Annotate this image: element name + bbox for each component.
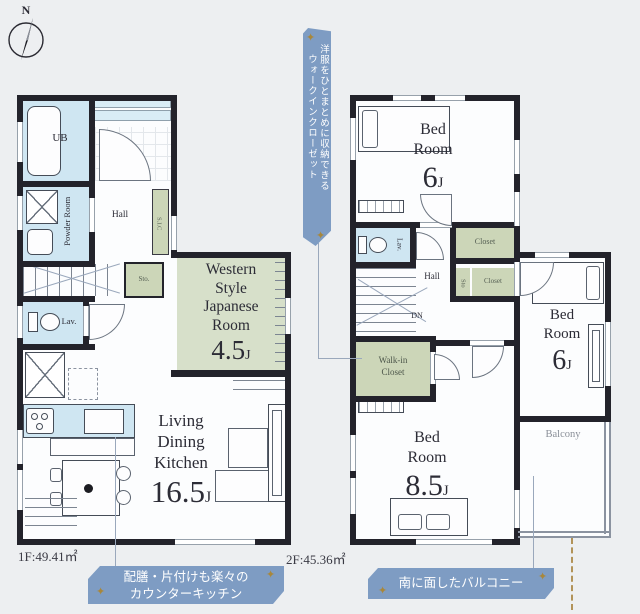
annotation-text: カウンターキッチン <box>88 586 284 603</box>
label-line: Room <box>528 327 596 342</box>
annotation-banner-wic: 洋服をひとまとめに収納できる ウォークインクローゼット <box>303 28 331 246</box>
label-line: Bed <box>392 430 462 446</box>
room-label-sto: Sto. <box>126 276 162 283</box>
size-unit: J <box>205 489 211 506</box>
wall <box>350 396 436 402</box>
washing-machine <box>26 190 58 224</box>
wall <box>514 95 520 258</box>
label-line: Room <box>180 318 282 334</box>
compass-icon <box>8 4 64 68</box>
label-line: Japanese <box>180 299 282 315</box>
burner-icon <box>36 423 43 430</box>
window <box>17 306 23 338</box>
chair <box>116 466 131 481</box>
window <box>17 430 23 464</box>
window <box>175 539 255 545</box>
label-line: Bed <box>528 308 596 323</box>
stove <box>26 408 54 434</box>
wall <box>17 261 95 267</box>
wall <box>450 296 520 302</box>
window <box>285 298 291 334</box>
room-size: 6J <box>398 163 468 193</box>
washbasin <box>27 229 53 255</box>
kitchen-sink <box>84 409 124 434</box>
window <box>393 95 421 101</box>
star-icon: ✦ <box>538 571 547 582</box>
wall <box>450 228 456 302</box>
chair <box>50 468 62 482</box>
star-icon: ✦ <box>378 585 387 596</box>
label-line: Western <box>180 262 282 278</box>
label-line: Room <box>398 142 468 158</box>
size-number: 6 <box>423 161 438 194</box>
pillow <box>362 110 378 148</box>
size-number: 16.5 <box>151 474 205 509</box>
balcony-rail <box>609 422 611 538</box>
wall <box>514 416 611 422</box>
size-number: 8.5 <box>405 469 443 502</box>
size-number: 4.5 <box>211 335 245 365</box>
window <box>350 478 356 514</box>
pillow <box>586 266 600 300</box>
wall <box>285 252 291 545</box>
size-unit: J <box>245 348 250 363</box>
wall <box>171 370 291 377</box>
stairs-dn-label: DN <box>402 312 432 320</box>
wall <box>350 262 416 268</box>
pillow <box>398 514 422 530</box>
refrigerator-space <box>25 352 65 398</box>
pillow <box>426 514 450 530</box>
window <box>514 192 520 226</box>
stairs <box>356 268 416 336</box>
room-label-bed1: Bed Room 6J <box>398 122 468 193</box>
compass: N <box>8 4 64 68</box>
annotation-text: 南に面したバルコニー <box>399 576 524 590</box>
room-label-closet-small: Closet <box>472 278 514 285</box>
label-line: Room <box>392 450 462 466</box>
floorplan-canvas: N <box>0 0 640 614</box>
window <box>416 539 492 545</box>
toilet-tank <box>28 312 38 332</box>
room-size: 4.5J <box>180 337 282 364</box>
annotation-text: 洋服をひとまとめに収納できる <box>316 44 330 191</box>
room-size: 16.5J <box>130 476 232 507</box>
wall <box>89 95 95 267</box>
window <box>350 118 356 160</box>
callout-line-balcony <box>533 476 534 568</box>
window <box>17 196 23 230</box>
label-line: Closet <box>360 368 426 377</box>
chair <box>116 490 131 505</box>
room-label-ldk: Living Dining Kitchen 16.5J <box>130 412 232 507</box>
window <box>535 252 569 258</box>
star-icon: ✦ <box>316 230 325 241</box>
annotation-text: ウォークインクローゼット <box>304 54 318 180</box>
room-size: 8.5J <box>392 471 462 501</box>
wall <box>171 252 291 258</box>
window <box>514 140 520 174</box>
sofa <box>228 428 268 468</box>
label-line: Walk-in <box>360 356 426 365</box>
room-label-powder: Powder Room <box>63 191 72 251</box>
room-label-bed3: Bed Room 6J <box>528 308 596 375</box>
room-label-balcony: Balcony <box>530 430 596 441</box>
size-unit: J <box>443 483 449 499</box>
room-label-sto: Sto <box>459 272 466 294</box>
window <box>605 322 611 386</box>
floor-board <box>25 498 77 528</box>
label-line: Dining <box>130 433 232 450</box>
wall <box>450 258 520 264</box>
label-line: Style <box>180 281 282 297</box>
french-window-inner <box>272 410 282 496</box>
room-label-japanese: Western Style Japanese Room 4.5J <box>180 262 282 364</box>
annotation-banner-balcony: 南に面したバルコニー <box>368 568 554 599</box>
star-icon: ✦ <box>96 586 105 597</box>
label-line: Living <box>130 412 232 429</box>
callout-line-wic <box>318 358 362 359</box>
balcony-door <box>514 490 520 528</box>
burner-icon <box>31 413 38 420</box>
door-opening <box>89 198 95 232</box>
door-opening <box>171 216 177 250</box>
room-label-hall: Hall <box>412 272 452 281</box>
size-unit: J <box>438 175 444 191</box>
porch-step <box>93 110 171 121</box>
wall <box>17 181 95 187</box>
star-icon: ✦ <box>306 32 315 43</box>
room-label-wic: Walk-in Closet <box>360 356 426 377</box>
room-label-ub: UB <box>46 133 74 144</box>
balcony-rail <box>604 422 606 534</box>
counter-front <box>50 438 135 456</box>
gold-dashed-line <box>571 538 573 610</box>
balcony-rail <box>518 536 610 538</box>
window <box>17 470 23 510</box>
size-unit: J <box>566 358 571 373</box>
callout-line-kitchen <box>115 437 116 567</box>
room-size: 6J <box>528 347 596 375</box>
wall <box>17 95 177 101</box>
star-icon: ✦ <box>266 569 275 580</box>
room-label-lav: Lav. <box>56 317 82 326</box>
room-label-bed2: Bed Room 8.5J <box>392 430 462 501</box>
toilet-tank <box>358 236 367 254</box>
window <box>350 435 356 471</box>
wall <box>350 336 436 342</box>
size-number: 6 <box>552 345 566 376</box>
toilet-bowl <box>369 237 387 253</box>
room-label-closet: Closet <box>458 238 512 246</box>
floor1-area-label: 1F:49.41㎡ <box>18 546 78 565</box>
window <box>435 95 465 101</box>
room-label-sic: S.I.C <box>155 202 162 246</box>
label-line: Bed <box>398 122 468 138</box>
window <box>17 122 23 162</box>
desk-counter <box>358 200 404 213</box>
floor2-area-label: 2F:45.36㎡ <box>286 549 346 568</box>
label-line: Kitchen <box>130 454 232 471</box>
room-label-lav: Lav. <box>396 230 404 260</box>
room-label-hall: Hall <box>100 211 140 221</box>
annotation-text: 配膳・片付けも楽々の <box>88 569 284 586</box>
callout-line-wic <box>318 243 319 358</box>
annotation-banner-kitchen: 配膳・片付けも楽々の カウンターキッチン <box>88 566 284 604</box>
step-board <box>233 380 285 396</box>
dashed-fixture-box <box>68 368 98 400</box>
balcony-rail <box>518 531 610 533</box>
pendant-light <box>84 484 93 493</box>
burner-icon <box>41 413 48 420</box>
